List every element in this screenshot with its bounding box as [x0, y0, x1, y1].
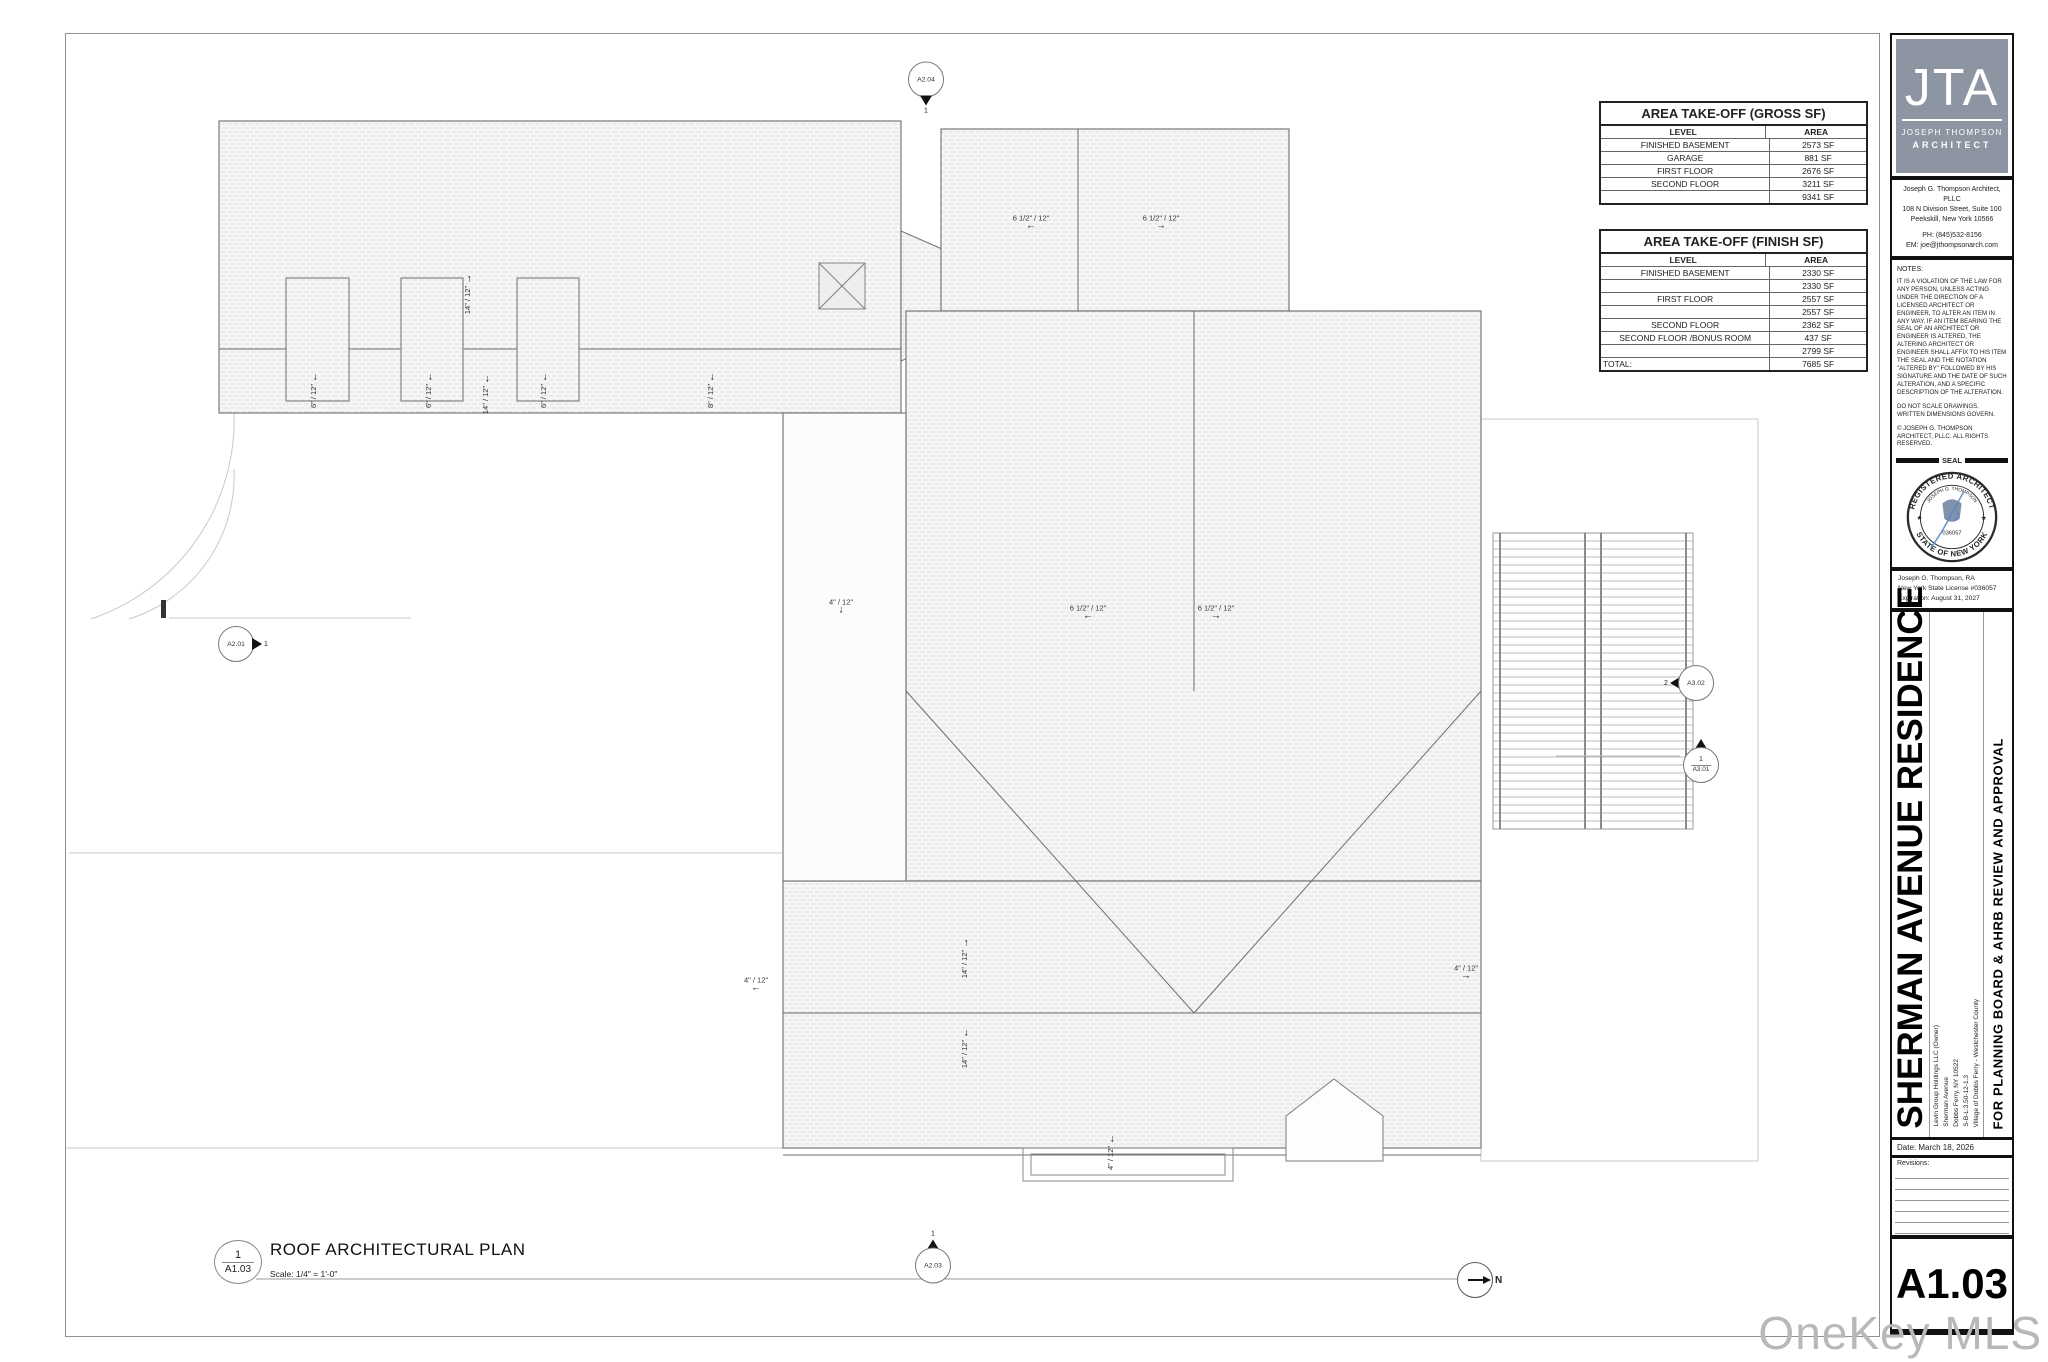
viewport-text: ROOF ARCHITECTURAL PLAN Scale: 1/4" = 1'…: [270, 1240, 526, 1279]
table-cell-level: SECOND FLOOR: [1601, 319, 1770, 331]
firm-info-line: Peekskill, New York 10566: [1895, 215, 2009, 225]
marker-circle: 1A3.01: [1683, 747, 1719, 783]
table-cell-area: 2330 SF: [1770, 280, 1866, 292]
north-arrow-shaft: [1468, 1279, 1483, 1281]
slope-value: 14" / 12": [464, 286, 472, 314]
submission-column: FOR PLANNING BOARD & AHRB REVIEW AND APP…: [1984, 612, 2012, 1137]
architect-seal: REGISTERED ARCHITECT STATE OF NEW YORK J…: [1892, 465, 2012, 567]
area-table-finish: AREA TAKE-OFF (FINISH SF) LEVEL AREA FIN…: [1599, 229, 1868, 372]
slope-arrow-icon: →: [962, 938, 969, 948]
table-cell-level: SECOND FLOOR: [1601, 178, 1770, 190]
title-block: JTA JOSEPH THOMPSON ARCHITECT Joseph G. …: [1890, 33, 2014, 1335]
marker-arrow-icon: [252, 638, 262, 650]
slope-value: 14" / 12": [961, 950, 969, 978]
table-row: SECOND FLOOR3211 SF: [1601, 177, 1866, 190]
slope-arrow-icon: ←: [1083, 613, 1093, 620]
slope-value: 4" / 12": [1107, 1146, 1115, 1170]
slope-annotation: 4" / 12"←: [744, 976, 768, 991]
firm-logo: JTA JOSEPH THOMPSON ARCHITECT: [1896, 39, 2008, 173]
seal-bar: [1896, 458, 1939, 463]
table-cell-level: FIRST FLOOR: [1601, 293, 1770, 305]
table-body: FINISHED BASEMENT2573 SFGARAGE881 SFFIRS…: [1601, 138, 1866, 203]
viewport-number: 1: [222, 1249, 254, 1263]
table-cell-area: 3211 SF: [1770, 178, 1866, 190]
project-info-line: Sherman Avenue: [1943, 1077, 1950, 1127]
table-cell-level: FINISHED BASEMENT: [1601, 267, 1770, 279]
slope-annotation: 6 1/2" / 12"→: [1143, 214, 1180, 229]
revision-row: [1895, 1190, 2009, 1201]
marker-number: 1: [924, 108, 928, 115]
table-row: SECOND FLOOR2362 SF: [1601, 318, 1866, 331]
seal-header: SEAL: [1892, 456, 2012, 465]
firm-info-line: EM: joe@jthompsonarch.com: [1895, 241, 2009, 251]
table-cell-level: TOTAL:: [1601, 358, 1770, 370]
north-arrow-head: [1483, 1276, 1491, 1284]
notes-section: NOTES: IT IS A VIOLATION OF THE LAW FOR …: [1892, 260, 2012, 457]
marker-arrow-icon: [920, 96, 932, 106]
firm-info-line: 108 N Division Street, Suite 100: [1895, 205, 2009, 215]
column-header-area: AREA: [1766, 126, 1866, 138]
drawing-canvas: 6 1/2" / 12"←6 1/2" / 12"→14" / 12"→6" /…: [65, 33, 1880, 1337]
notes-paragraph: IT IS A VIOLATION OF THE LAW FOR ANY PER…: [1897, 278, 2007, 397]
slope-value: 8" / 12": [707, 384, 715, 408]
section-marker-a2-04: A2.041: [908, 62, 944, 117]
notes-paragraph: DO NOT SCALE DRAWINGS. WRITTEN DIMENSION…: [1897, 403, 2007, 419]
revisions-label: Revisions:: [1892, 1158, 2012, 1168]
project-info-line: Dobbs Ferry, NY 10522: [1953, 1059, 1960, 1127]
project-section: SHERMAN AVENUE RESIDENCE Levin Group Hol…: [1892, 608, 2012, 1137]
firm-info-line: Joseph G. Thompson Architect, PLLC: [1895, 185, 2009, 205]
svg-text:★: ★: [1916, 515, 1922, 522]
column-header-level: LEVEL: [1601, 254, 1766, 266]
slope-arrow-icon: ←: [751, 985, 761, 992]
table-cell-level: GARAGE: [1601, 152, 1770, 164]
table-cell-level: SECOND FLOOR /BONUS ROOM: [1601, 332, 1770, 344]
section-marker-a2-03: 1A2.03: [915, 1229, 951, 1284]
table-cell-level: FIRST FLOOR: [1601, 165, 1770, 177]
slope-arrow-icon: →: [1461, 973, 1471, 980]
slope-annotation: 6" / 12"←: [425, 372, 433, 408]
slope-arrow-icon: →: [1156, 223, 1166, 230]
slope-arrow-icon: ↓: [839, 607, 844, 614]
slope-annotation: 14" / 12"←: [961, 1028, 969, 1068]
slope-arrow-icon: ←: [483, 374, 490, 384]
slope-arrow-icon: ←: [1108, 1134, 1115, 1144]
table-row: GARAGE881 SF: [1601, 151, 1866, 164]
slope-value: 14" / 12": [961, 1040, 969, 1068]
section-marker-a3-01: 1A3.01: [1683, 739, 1719, 783]
revisions-section: Revisions:: [1892, 1158, 2012, 1235]
slope-annotation: 14" / 12"→: [961, 938, 969, 978]
table-cell-level: [1601, 306, 1770, 318]
section-marker-a2-01: A2.011: [218, 626, 270, 662]
slope-arrow-icon: ←: [1026, 223, 1036, 230]
table-cell-area: 881 SF: [1770, 152, 1866, 164]
slope-annotation: 6 1/2" / 12"←: [1013, 214, 1050, 229]
notes-paragraph: © JOSEPH G. THOMPSON ARCHITECT, PLLC. AL…: [1897, 425, 2007, 449]
watermark: OneKey MLS: [1758, 1306, 2042, 1360]
submission-title: FOR PLANNING BOARD & AHRB REVIEW AND APP…: [1991, 738, 2006, 1129]
revision-row: [1895, 1179, 2009, 1190]
table-cell-area: 2330 SF: [1770, 267, 1866, 279]
slope-arrow-icon: →: [1211, 613, 1221, 620]
slope-arrow-icon: ←: [708, 372, 715, 382]
slope-value: 6" / 12": [310, 384, 318, 408]
plan-title: ROOF ARCHITECTURAL PLAN: [270, 1240, 526, 1260]
table-cell-level: [1601, 191, 1770, 203]
table-title: AREA TAKE-OFF (GROSS SF): [1601, 103, 1866, 126]
marker-number: 1: [931, 1231, 935, 1238]
table-cell-area: 2573 SF: [1770, 139, 1866, 151]
marker-circle: A2.04: [908, 62, 944, 98]
revision-row: [1895, 1223, 2009, 1234]
table-header: LEVEL AREA: [1601, 126, 1866, 138]
slope-arrow-icon: ←: [962, 1028, 969, 1038]
slope-arrow-icon: →: [465, 274, 472, 284]
notes-label: NOTES:: [1897, 265, 2007, 274]
viewport-number-bubble: 1 A1.03: [214, 1240, 262, 1284]
project-info-line: Village of Dobbs Ferry - Westchester Cou…: [1973, 999, 1980, 1127]
svg-text:★: ★: [1981, 515, 1987, 522]
logo-name: JOSEPH THOMPSON: [1901, 128, 2002, 137]
table-cell-level: [1601, 280, 1770, 292]
slope-annotation: 6 1/2" / 12"←: [1070, 604, 1107, 619]
project-title: SHERMAN AVENUE RESIDENCE: [1891, 586, 1931, 1129]
marker-label: A3.01: [1693, 766, 1710, 775]
revision-row: [1895, 1168, 2009, 1179]
license-line: Joseph G. Thompson, RA: [1898, 574, 2006, 584]
table-row: FIRST FLOOR2676 SF: [1601, 164, 1866, 177]
table-cell-level: [1601, 345, 1770, 357]
column-header-area: AREA: [1766, 254, 1866, 266]
table-row: TOTAL:7685 SF: [1601, 357, 1866, 370]
logo-title: ARCHITECT: [1913, 140, 1992, 150]
notes-text: IT IS A VIOLATION OF THE LAW FOR ANY PER…: [1897, 278, 2007, 448]
marker-number: 2: [1664, 680, 1668, 687]
slope-annotation: 4" / 12"←: [1107, 1134, 1115, 1170]
slope-annotation: 6 1/2" / 12"→: [1198, 604, 1235, 619]
slope-annotation: 8" / 12"←: [707, 372, 715, 408]
table-cell-area: 7685 SF: [1770, 358, 1866, 370]
project-info-line: Levin Group Holdings LLC (Owner): [1933, 1025, 1940, 1127]
project-info-column: Levin Group Holdings LLC (Owner)Sherman …: [1930, 612, 1984, 1137]
table-row: FINISHED BASEMENT2573 SF: [1601, 138, 1866, 151]
firm-info-line: PH: (845)532-8156: [1895, 231, 2009, 241]
date-row: Date: March 18, 2026: [1892, 1137, 2012, 1158]
slope-value: 6" / 12": [425, 384, 433, 408]
project-title-column: SHERMAN AVENUE RESIDENCE: [1892, 612, 1930, 1137]
north-arrow: N: [1457, 1262, 1502, 1298]
section-marker-a3-02: 2A3.02: [1662, 665, 1714, 701]
slope-annotation: 6" / 12"←: [540, 372, 548, 408]
table-cell-level: FINISHED BASEMENT: [1601, 139, 1770, 151]
drawing-sheet: 6 1/2" / 12"←6 1/2" / 12"→14" / 12"→6" /…: [0, 0, 2048, 1362]
project-info-line: S-B-L:3.50-12-1.3: [1963, 1075, 1970, 1127]
table-cell-area: 9341 SF: [1770, 191, 1866, 203]
marker-number: 1: [264, 641, 268, 648]
seal-bar: [1965, 458, 2008, 463]
slope-annotation: 14" / 12"←: [482, 374, 490, 414]
table-cell-area: 2799 SF: [1770, 345, 1866, 357]
revision-row: [1895, 1212, 2009, 1223]
table-row: 2557 SF: [1601, 305, 1866, 318]
slope-arrow-icon: ←: [426, 372, 433, 382]
table-cell-area: 2557 SF: [1770, 306, 1866, 318]
table-header: LEVEL AREA: [1601, 254, 1866, 266]
marker-circle: A3.02: [1678, 665, 1714, 701]
table-row: SECOND FLOOR /BONUS ROOM437 SF: [1601, 331, 1866, 344]
slope-value: 6" / 12": [540, 384, 548, 408]
viewport-title: 1 A1.03 ROOF ARCHITECTURAL PLAN Scale: 1…: [214, 1240, 526, 1284]
table-cell-area: 2557 SF: [1770, 293, 1866, 305]
table-cell-area: 2362 SF: [1770, 319, 1866, 331]
slope-annotation: 4" / 12"↓: [829, 598, 853, 613]
north-arrow-icon: [1457, 1262, 1493, 1298]
firm-contact-info: Joseph G. Thompson Architect, PLLC108 N …: [1892, 180, 2012, 256]
seal-label: SEAL: [1942, 456, 1962, 465]
seal-stamp-icon: REGISTERED ARCHITECT STATE OF NEW YORK J…: [1904, 469, 2000, 565]
table-body: FINISHED BASEMENT2330 SF2330 SFFIRST FLO…: [1601, 266, 1866, 370]
plan-scale: Scale: 1/4" = 1'-0": [270, 1269, 526, 1279]
slope-arrow-icon: ←: [311, 372, 318, 382]
table-row: FINISHED BASEMENT2330 SF: [1601, 266, 1866, 279]
slope-arrow-icon: ←: [541, 372, 548, 382]
table-row: FIRST FLOOR2557 SF: [1601, 292, 1866, 305]
table-row: 9341 SF: [1601, 190, 1866, 203]
table-row: 2330 SF: [1601, 279, 1866, 292]
table-cell-area: 437 SF: [1770, 332, 1866, 344]
area-table-gross: AREA TAKE-OFF (GROSS SF) LEVEL AREA FINI…: [1599, 101, 1868, 205]
slope-value: 14" / 12": [482, 386, 490, 414]
revision-row: [1895, 1201, 2009, 1212]
marker-circle: A2.01: [218, 626, 254, 662]
north-label: N: [1495, 1275, 1502, 1286]
svg-text:036057: 036057: [1942, 531, 1961, 537]
marker-circle: A2.03: [915, 1248, 951, 1284]
slope-annotation: 4" / 12"→: [1454, 964, 1478, 979]
marker-number: 1: [1691, 755, 1711, 765]
logo-initials: JTA: [1902, 62, 2003, 121]
slope-annotation: 14" / 12"→: [464, 274, 472, 314]
viewport-sheet-ref: A1.03: [225, 1263, 251, 1275]
column-header-level: LEVEL: [1601, 126, 1766, 138]
table-cell-area: 2676 SF: [1770, 165, 1866, 177]
slope-annotation: 6" / 12"←: [310, 372, 318, 408]
table-row: 2799 SF: [1601, 344, 1866, 357]
table-title: AREA TAKE-OFF (FINISH SF): [1601, 231, 1866, 254]
